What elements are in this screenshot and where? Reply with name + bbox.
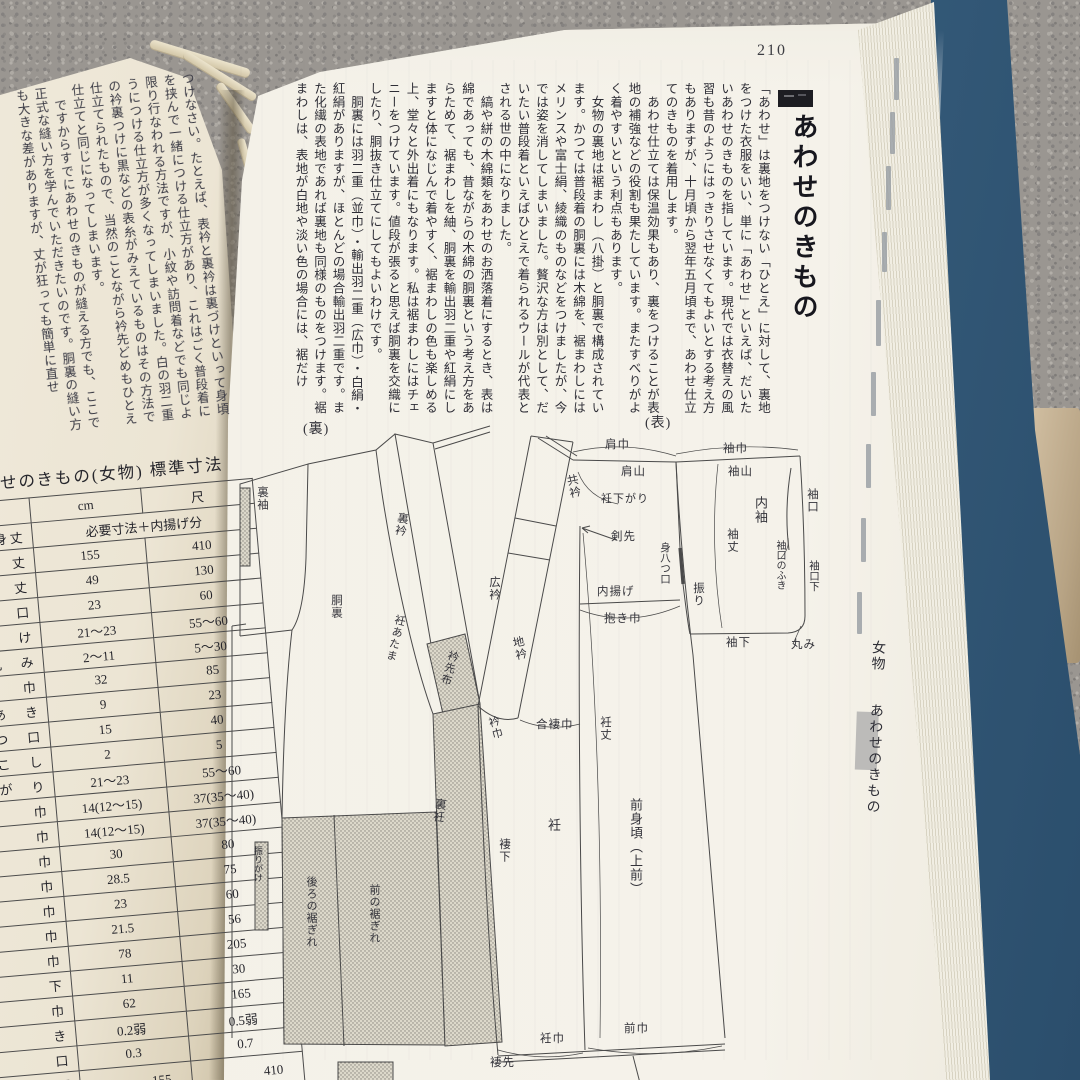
label-sodetake: 袖丈 xyxy=(724,528,740,553)
label-mae-susogire: 前の裾ぎれ xyxy=(366,884,382,944)
label-okumisagari: 衽下がり xyxy=(601,490,649,506)
label-miyatsuguchi: 身八つ口 xyxy=(657,542,672,584)
left-page-body-text: つけなさい。たとえば、表衿と裏衿は裏づけといって身頃を挟んで一緒につける仕立方が… xyxy=(0,71,232,445)
label-tsumashita: 褄下 xyxy=(496,838,512,863)
label-hiroeri: 広衿 xyxy=(486,576,502,601)
label-katahaba: 肩巾 xyxy=(605,436,630,452)
label-kensaki: 剣先 xyxy=(611,528,636,544)
label-furigake: 振りがけ xyxy=(252,846,265,882)
label-okumitake: 衽丈 xyxy=(597,716,613,741)
right-page-body-text: 「あわせ」は裏地をつけない「ひとえ」に対して、裏地をつけた衣服をいい、単に「あわ… xyxy=(240,82,772,420)
book-photo-scene: つけなさい。たとえば、表衿と裏衿は裏づけといって身頃を挟んで一緒につける仕立方が… xyxy=(0,0,1080,1080)
label-sodeyama: 袖山 xyxy=(728,463,753,479)
label-uchiage: 内揚げ xyxy=(597,583,635,599)
label-ushiro-susogire: 後ろの裾ぎれ xyxy=(303,876,319,948)
label-dakihaba: 抱き巾 xyxy=(604,610,642,626)
label-furi: 振り xyxy=(690,582,706,607)
kimono-diagram-lineart xyxy=(228,398,888,1080)
label-aizumahaba: 合褄巾 xyxy=(536,716,574,732)
label-maemigoro: 前身頃（上前） xyxy=(626,798,645,896)
label-sodeguchishita: 袖口下 xyxy=(806,560,821,592)
page-number: 210 xyxy=(757,42,787,60)
label-okumihaba: 衽巾 xyxy=(540,1030,565,1046)
label-urasode: 裏袖 xyxy=(254,486,270,511)
diagram-front-caption: (表) xyxy=(645,412,671,432)
label-uchisode: 内袖 xyxy=(751,496,770,524)
label-sodehaba: 袖巾 xyxy=(723,440,748,456)
label-marumi: 丸み xyxy=(791,636,816,652)
label-maehaba: 前巾 xyxy=(624,1020,649,1036)
label-katayama: 肩山 xyxy=(621,463,646,479)
label-tsumasaki: 褄先 xyxy=(490,1054,515,1070)
label-okumi: 衽 xyxy=(544,818,563,832)
diagram-back-caption: (裏) xyxy=(303,418,329,438)
page-title: あわせのきもの xyxy=(785,113,822,323)
label-sodeguchi-fuki: 袖口のふき xyxy=(772,540,787,590)
label-douura: 胴裏 xyxy=(328,594,344,619)
section-marker-icon xyxy=(778,90,813,107)
label-sodeguchi: 袖口 xyxy=(804,488,820,513)
label-sodeshita: 袖下 xyxy=(726,634,751,650)
label-uraokumi: 裏衽 xyxy=(429,797,448,824)
